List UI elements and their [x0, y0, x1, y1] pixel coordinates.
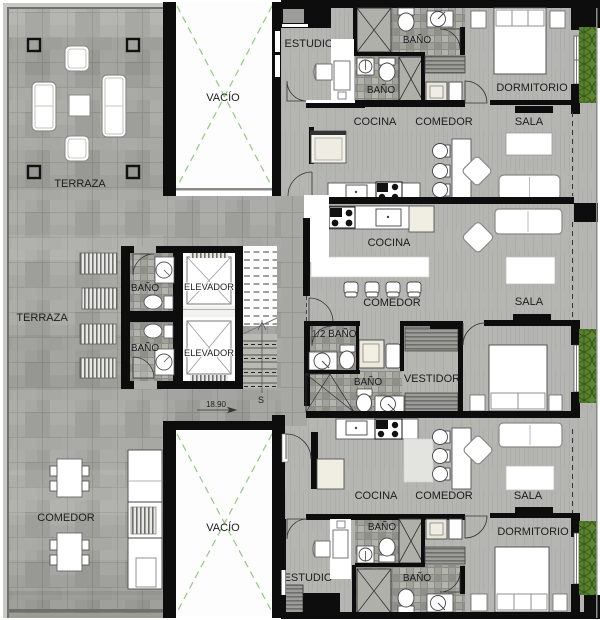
svg-text:BAÑO: BAÑO	[403, 33, 432, 46]
svg-text:TERRAZA: TERRAZA	[54, 178, 106, 190]
svg-text:ELEVADOR: ELEVADOR	[184, 348, 234, 358]
svg-text:COCINA: COCINA	[354, 116, 397, 128]
svg-text:BAÑO: BAÑO	[131, 341, 160, 354]
svg-text:ESTUDIO: ESTUDIO	[285, 38, 334, 50]
svg-text:ELEVADOR: ELEVADOR	[184, 282, 234, 292]
svg-text:COMEDOR: COMEDOR	[37, 512, 95, 524]
svg-text:S: S	[258, 395, 264, 405]
svg-text:DORMITORIO: DORMITORIO	[496, 82, 568, 94]
svg-text:TERRAZA: TERRAZA	[16, 312, 68, 324]
svg-text:COCINA: COCINA	[368, 237, 411, 249]
svg-text:SALA: SALA	[514, 490, 543, 502]
svg-text:BAÑO: BAÑO	[403, 571, 432, 584]
svg-text:SALA: SALA	[515, 116, 544, 128]
svg-text:18.90: 18.90	[206, 400, 227, 409]
svg-text:DORMITORIO: DORMITORIO	[497, 526, 569, 538]
svg-text:VACÍO: VACÍO	[206, 521, 240, 534]
svg-text:COMEDOR: COMEDOR	[415, 490, 473, 502]
svg-text:BAÑO: BAÑO	[131, 281, 160, 294]
svg-text:COMEDOR: COMEDOR	[363, 297, 421, 309]
svg-text:COMEDOR: COMEDOR	[415, 116, 473, 128]
svg-text:ESTUDIO: ESTUDIO	[284, 572, 333, 584]
svg-text:BAÑO: BAÑO	[354, 375, 383, 388]
svg-text:COCINA: COCINA	[355, 490, 398, 502]
svg-text:VACÍO: VACÍO	[206, 91, 240, 104]
svg-text:SALA: SALA	[515, 296, 544, 308]
svg-text:BAÑO: BAÑO	[368, 520, 397, 533]
svg-text:VESTIDOR: VESTIDOR	[404, 373, 460, 385]
svg-text:BAÑO: BAÑO	[367, 83, 396, 96]
